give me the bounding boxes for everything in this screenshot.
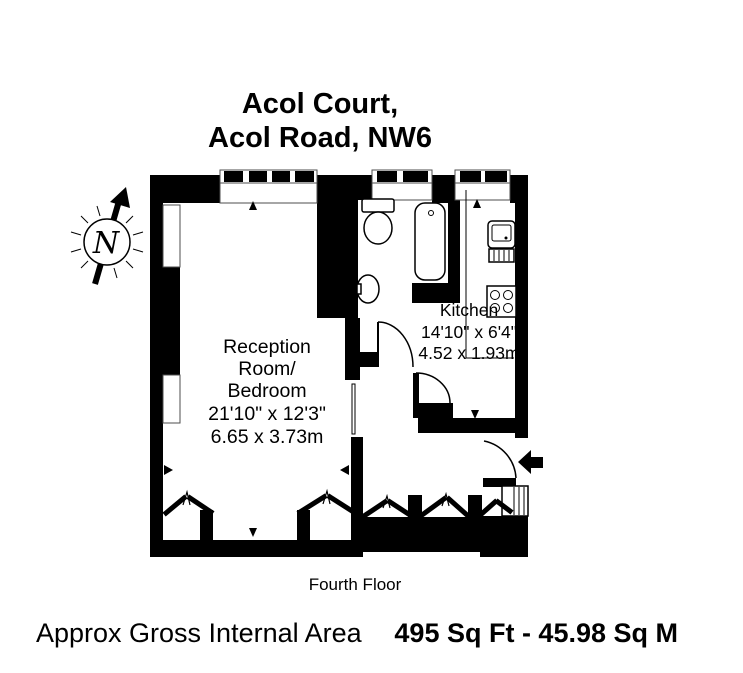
wall-top-right-chunk (510, 175, 528, 203)
reception-name-line1: Reception (223, 336, 311, 358)
bay-sill (372, 183, 432, 200)
property-title-line1: Acol Court, (242, 88, 398, 120)
window-pane (377, 171, 397, 182)
bay-symbol (390, 502, 410, 515)
kitchen-dims-imperial: 14'10" x 6'4" (421, 322, 517, 342)
kitchen-name: Kitchen (440, 300, 498, 320)
tick-down (249, 528, 257, 537)
window-pane (272, 171, 290, 182)
area-label: Approx Gross Internal Area (36, 618, 363, 648)
toilet-bowl (364, 212, 392, 244)
wall-right-upper (515, 175, 528, 438)
wall-divider-low (351, 437, 363, 557)
floorplan-page: Acol Court, Acol Road, NW6 N (0, 0, 743, 673)
kitchen-door-leaf (413, 373, 419, 403)
tick-down (471, 410, 479, 419)
bay-symbol (449, 499, 467, 515)
compass-ray (133, 249, 143, 252)
wall-bottom-left (150, 540, 363, 557)
property-title-line2: Acol Road, NW6 (208, 122, 432, 154)
kitchen-dims-metric: 4.52 x 1.93m (418, 343, 519, 363)
reception-room-label: Reception Room/ Bedroom 21'10" x 12'3" 6… (208, 336, 326, 448)
bay-sill (220, 183, 317, 203)
floor-label: Fourth Floor (309, 575, 402, 594)
compass-ray (133, 232, 143, 235)
bay-symbol (364, 502, 385, 516)
chimney-breast (163, 267, 180, 375)
kitchen-sink-drain (505, 237, 508, 240)
kitchen-door-swing (416, 373, 450, 403)
window-pane (224, 171, 243, 182)
compass-arrowhead-icon (110, 187, 130, 208)
wall-top-left-chunk (150, 175, 220, 203)
wall-bathroom-south (345, 352, 378, 367)
window-bay-bathroom (372, 170, 432, 200)
wall-left (150, 175, 163, 557)
tick-right (164, 465, 173, 475)
left-alcove-recess (163, 375, 180, 423)
compass-ray (97, 206, 100, 216)
reception-dims-imperial: 21'10" x 12'3" (208, 403, 326, 425)
compass-ray (114, 268, 117, 278)
entry-door-swing (484, 441, 516, 478)
compass-ray (71, 232, 81, 235)
bay-symbol (422, 499, 444, 515)
bay-symbol (166, 498, 184, 513)
wall-kitchen-south-b (418, 418, 520, 433)
wall-divider-block (317, 188, 358, 318)
bay-symbol (190, 498, 211, 512)
wall-kitchen-south-a (413, 403, 453, 418)
wall-bath-kitchen (448, 188, 460, 283)
window-pane (249, 171, 267, 182)
compass-north-label: N (92, 226, 121, 261)
window-pane (460, 171, 481, 182)
compass-ray (71, 249, 81, 252)
window-pane (295, 171, 314, 182)
window-bay-reception (220, 170, 317, 203)
wall-corner-block (480, 516, 528, 557)
north-arrow-compass: N (71, 187, 143, 284)
bay-sill (455, 183, 510, 200)
entry-arrow-icon (518, 450, 543, 474)
reception-name-line2: Room/ (238, 358, 296, 380)
bay-symbol (330, 497, 352, 511)
compass-ray (81, 261, 88, 268)
toilet-cistern (362, 199, 394, 212)
bay-symbol (300, 497, 324, 512)
tick-left (340, 465, 349, 475)
compass-ray (126, 261, 133, 268)
compass-ray (81, 216, 88, 223)
bottom-bay-symbols (166, 491, 510, 518)
reception-dims-metric: 6.65 x 3.73m (211, 426, 324, 448)
window-pane (485, 171, 507, 182)
reception-door-leaf (352, 384, 355, 434)
reception-name-line3: Bedroom (227, 380, 306, 402)
floorplan-canvas: Acol Court, Acol Road, NW6 N (0, 0, 743, 673)
basin-tap (357, 284, 361, 294)
compass-ray (126, 216, 133, 223)
wall-divider-mid (345, 318, 360, 380)
area-value: 495 Sq Ft - 45.98 Sq M (394, 618, 678, 648)
window-pane (403, 171, 428, 182)
window-bay-kitchen (455, 170, 510, 200)
kitchen-drainer (489, 249, 514, 262)
entry-cupboard (502, 486, 528, 516)
left-alcove-recess (163, 205, 180, 267)
bathroom-door-swing (378, 322, 413, 367)
bathtub (415, 203, 445, 280)
